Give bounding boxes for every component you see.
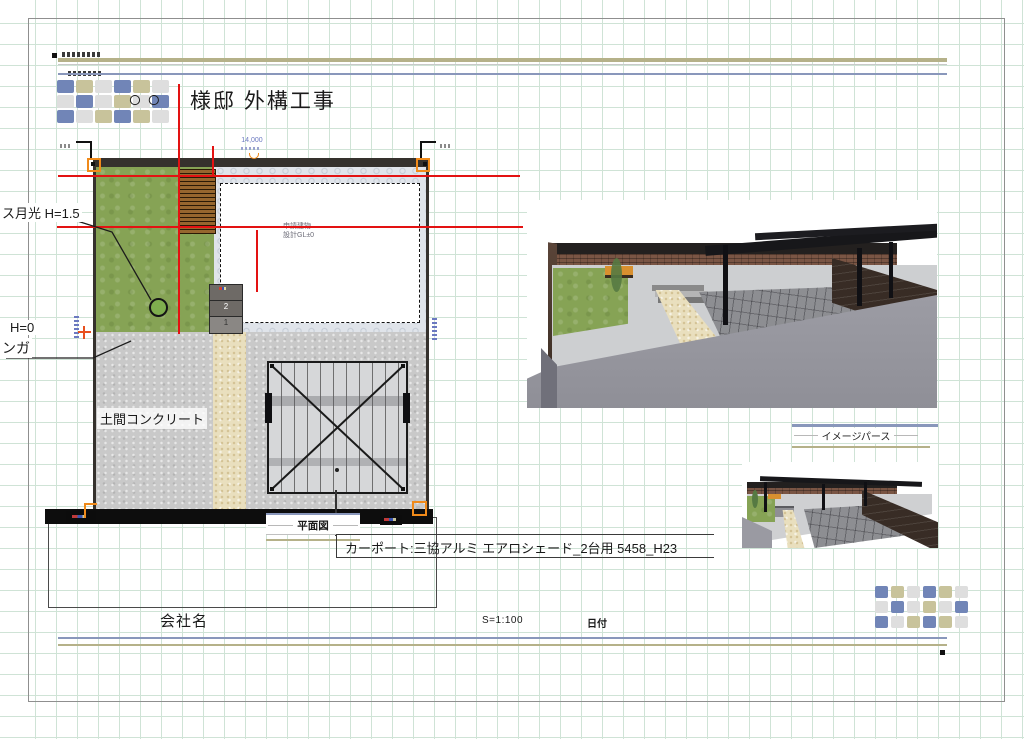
corner-dot <box>423 162 427 166</box>
plan-border-right <box>426 158 429 512</box>
render2-post-2 <box>822 484 825 510</box>
logo-mosaic-cell <box>57 80 74 93</box>
carport-post-left <box>265 393 272 423</box>
porch-marker-chip <box>219 287 226 290</box>
step-number-2: 2 <box>210 302 242 311</box>
sheet-corner-mark-top <box>52 53 57 58</box>
plan-caption-box: 平面図 <box>266 513 360 535</box>
perspective-render-main <box>527 200 937 408</box>
perspective-caption-underline <box>792 446 930 448</box>
red-line-vertical-1 <box>178 84 180 334</box>
logo-mosaic-cell <box>907 616 920 628</box>
carport-post-right <box>403 393 410 423</box>
logo-mosaic-cell <box>955 616 968 628</box>
render-tree <box>611 258 622 292</box>
logo-mosaic-cell <box>875 616 888 628</box>
carport-x-brace <box>269 363 406 492</box>
logo-mosaic-cell <box>57 110 74 123</box>
building-label-line2: 設計GL±0 <box>283 231 314 240</box>
red-line-vertical-3 <box>212 146 214 176</box>
render-carport-post-3 <box>889 242 893 298</box>
carport-corner-dot-tl <box>270 364 274 368</box>
logo-mosaic-cell <box>891 586 904 598</box>
step-number-1: 1 <box>210 318 242 327</box>
logo-mosaic-cell <box>923 616 936 628</box>
logo-mosaic-cell <box>891 616 904 628</box>
render2-bench <box>768 494 781 499</box>
render2-post-3 <box>864 482 867 506</box>
logo-mosaic-cell <box>76 110 93 123</box>
bracket-top-right-v <box>420 141 422 158</box>
carport-corner-dot-tr <box>401 364 405 368</box>
label-doma-concrete: 土間コンクリート <box>97 408 207 429</box>
corner-dot <box>91 162 95 166</box>
plan-corner-marker-tr <box>416 158 430 172</box>
carport-leader-anchor <box>335 468 339 472</box>
logo-mosaic-cell <box>891 601 904 613</box>
company-name: 会社名 <box>160 610 208 631</box>
logo-mosaic-cell <box>95 80 112 93</box>
drawing-sheet: ○○ 様邸 外構工事 14,000 申請建物 設計GL±0 2 1 <box>0 0 1024 739</box>
plan-carport <box>267 361 408 494</box>
band-olive-bottom <box>58 644 947 646</box>
plan-caption: 平面図 <box>268 518 358 532</box>
plan-corner-marker-br <box>412 501 427 516</box>
band-blue-bottom <box>58 637 947 639</box>
tree-symbol <box>149 298 168 317</box>
logo-mosaic-cell <box>875 586 888 598</box>
logo-mosaic-cell <box>955 586 968 598</box>
scale-text: S=1:100 <box>482 615 523 626</box>
render-carport-post-1 <box>723 245 728 325</box>
building-label: 申請建物 設計GL±0 <box>283 222 314 240</box>
logo-mosaic-cell <box>95 95 112 108</box>
tag-chip <box>384 518 396 521</box>
red-line-vertical-2 <box>256 230 258 292</box>
carport-corner-dot-br <box>401 487 405 491</box>
logo-mosaic-cell <box>907 586 920 598</box>
logo-mosaic-cell <box>76 95 93 108</box>
band-olive-top <box>58 58 947 62</box>
logo-mosaic-cell <box>875 601 888 613</box>
red-line-horizontal-1 <box>58 175 520 177</box>
label-height-zero: H=0 <box>8 320 36 335</box>
plan-corner-marker-bl <box>84 503 97 518</box>
band-gray-top <box>58 64 947 65</box>
band-blue-top <box>58 73 947 75</box>
carport-note-text: カーポート:三協アルミ エアロシェード_2台用 5458_H23 <box>345 538 677 557</box>
plan-wood-deck <box>178 169 216 234</box>
title-block-frame <box>48 517 437 608</box>
bracket-top-left-v <box>90 141 92 158</box>
label-brick: ンガ <box>0 338 32 358</box>
perspective-caption-topline <box>792 424 938 427</box>
label-fence: ス月光 H=1.5 <box>0 203 82 222</box>
logo-mosaic-cell <box>907 601 920 613</box>
plan-gravel-path <box>213 332 246 510</box>
carport-corner-dot-bl <box>270 487 274 491</box>
plan-border-left <box>93 158 96 512</box>
logo-mosaic-cell <box>939 616 952 628</box>
logo-mosaic-cell <box>57 95 74 108</box>
perspective-caption: イメージパース <box>794 429 918 442</box>
logo-mosaic-cell <box>923 586 936 598</box>
date-label: 日付 <box>587 615 607 630</box>
logo-mosaic-cell <box>923 601 936 613</box>
carport-note-box: カーポート:三協アルミ エアロシェード_2台用 5458_H23 <box>336 534 714 558</box>
logo-mosaic-cell <box>76 80 93 93</box>
logo-mosaic-cell <box>95 110 112 123</box>
plan-building-outline: 申請建物 設計GL±0 <box>220 183 420 323</box>
dimension-top: 14,000 <box>228 137 276 144</box>
plan-corner-marker-tl <box>87 158 101 172</box>
red-line-horizontal-2 <box>57 226 523 228</box>
logo-mosaic-cell <box>939 586 952 598</box>
page-title: 様邸 外構工事 <box>190 85 336 115</box>
perspective-caption-text: イメージパース <box>818 428 895 443</box>
sheet-corner-mark-bottom <box>940 650 945 655</box>
render2-post-1 <box>764 482 767 512</box>
porch-step-line-1 <box>210 300 242 301</box>
corner-dot <box>416 506 420 509</box>
logo-mosaic-cell <box>955 601 968 613</box>
render-carport-post-2 <box>857 248 862 306</box>
plan-road-band <box>45 509 433 524</box>
logo-mosaic-cell <box>939 601 952 613</box>
plan-tag-bottom-right <box>380 515 402 525</box>
plan-border-top <box>93 158 429 167</box>
perspective-render-small <box>742 462 938 548</box>
plan-entrance-steps: 2 1 <box>209 284 243 334</box>
render2-tree <box>752 490 758 508</box>
plan-caption-text: 平面図 <box>293 518 333 533</box>
title-prefix-circles: ○○ <box>128 86 166 113</box>
bracket-top-right-h <box>420 141 436 143</box>
company-logo-mosaic-bottom <box>875 586 968 628</box>
